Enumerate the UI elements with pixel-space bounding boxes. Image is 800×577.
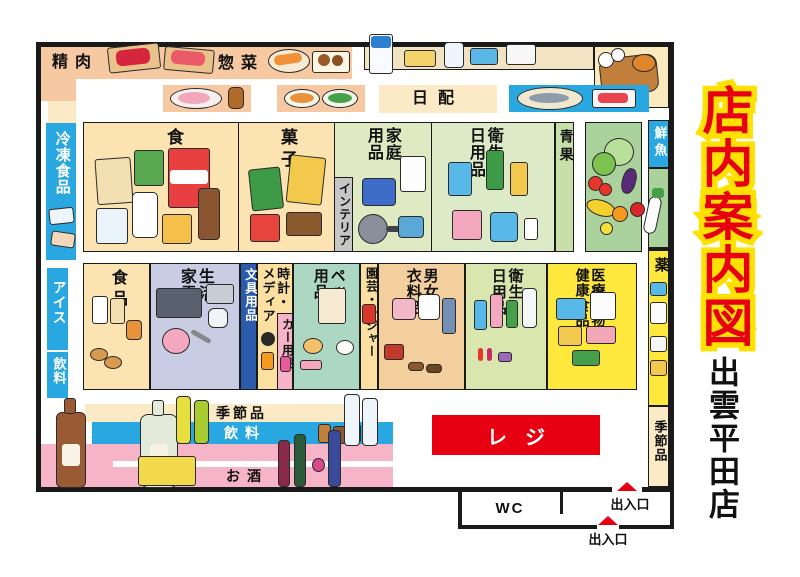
alcohol-bottles — [278, 440, 290, 487]
alcohol-bottles — [64, 398, 76, 414]
meat-boards — [170, 50, 205, 67]
left-cream-square — [48, 101, 76, 123]
pet-items — [336, 340, 354, 355]
register-label: レジ — [487, 421, 563, 450]
beverage-bottles — [176, 396, 191, 444]
salad-plates — [328, 93, 352, 103]
section-daily-delivery: 日配 — [412, 90, 464, 108]
grilled-fish-sashimi — [598, 93, 628, 103]
clothing-items — [392, 298, 416, 320]
meat-band-left-leg — [41, 79, 76, 101]
beverage-bottles — [344, 394, 360, 446]
section-interior: インテリア — [337, 182, 350, 247]
beverage-bottles — [362, 398, 378, 446]
section-seasonal-side: 季節品 — [652, 420, 667, 462]
section-alcohol-shelf: お酒 — [226, 469, 268, 485]
fried-fish-display — [611, 48, 625, 62]
section-seasonal-shelf: 季節品 — [216, 406, 267, 422]
vegetables — [600, 222, 613, 235]
media-items — [261, 332, 275, 346]
bread-milk — [92, 296, 108, 324]
dairy-products — [444, 42, 464, 68]
seasonal-shelf-band — [85, 404, 345, 422]
vegetables — [612, 206, 628, 222]
snack-items — [286, 212, 322, 236]
alcohol-bottles — [328, 430, 341, 487]
drug-packs — [650, 336, 667, 352]
clothing-items — [426, 364, 442, 373]
grocery-items — [94, 157, 133, 205]
section-stationery: 文具用品 — [243, 268, 257, 322]
garden-item — [362, 304, 376, 324]
alcohol-bottles — [294, 434, 306, 487]
alcohol-bottles — [152, 400, 164, 416]
clothing-items — [408, 362, 424, 371]
grilled-fish-sashimi — [529, 93, 569, 103]
alcohol-bottles — [62, 444, 80, 466]
cosmetic-items — [487, 348, 492, 361]
dairy-products — [371, 36, 391, 48]
ham-plate — [178, 92, 210, 104]
vegetables — [599, 183, 612, 196]
daikon — [652, 188, 664, 198]
grocery-items — [162, 214, 192, 244]
section-ice: アイス — [51, 280, 67, 325]
toiletry-items — [448, 162, 472, 196]
section-beverage-shelf: 飲料 — [224, 426, 266, 442]
entrance-bottom-label: 出入口 — [584, 533, 632, 548]
section-medicine: 薬 — [652, 257, 669, 273]
section-produce: 青果 — [558, 129, 574, 165]
grocery-items — [170, 170, 208, 184]
household-items — [400, 156, 426, 192]
appliance-items — [206, 284, 234, 304]
clothing-items — [384, 344, 404, 360]
medicine-strip — [648, 250, 669, 406]
drug-packs — [650, 302, 667, 324]
health-boxes — [590, 292, 616, 320]
vegetables — [630, 202, 645, 217]
fried-fish-display — [632, 54, 656, 72]
store-name: 出雲平田店 — [706, 356, 737, 521]
cosmetic-items — [506, 300, 518, 328]
drug-packs — [650, 360, 667, 376]
section-frozen: 冷凍食品 — [53, 131, 70, 195]
dairy-products — [404, 50, 436, 67]
wc-label: WC — [480, 501, 540, 518]
cosmetic-items — [478, 348, 483, 361]
store-map: 精肉 惣菜 日配 冷凍食品 アイス 飲料 食品 菓子 家庭 用品 — [0, 0, 800, 577]
deli-fried-foods — [318, 54, 330, 66]
household-items — [362, 178, 396, 206]
page-title: 店内案内図 店内案内図 — [692, 84, 770, 364]
salad-plates — [290, 93, 314, 103]
cosmetic-items — [474, 300, 487, 330]
section-household: 家庭 用品 — [364, 127, 400, 161]
bread-milk — [110, 298, 125, 324]
snack-items — [286, 154, 327, 206]
cosmetic-items — [498, 352, 512, 362]
cosmetic-items — [490, 294, 503, 328]
media-items — [261, 352, 274, 370]
toiletry-items — [510, 162, 528, 196]
health-boxes — [556, 298, 586, 320]
clothing-items — [418, 294, 440, 320]
deli-fried-foods — [332, 55, 343, 66]
register-counter: レジ — [432, 415, 600, 455]
household-items — [358, 214, 388, 244]
appliance-items — [208, 308, 228, 328]
beverage-bottles — [194, 400, 209, 444]
toiletry-items — [524, 218, 538, 240]
section-deli: 惣菜 — [218, 55, 264, 73]
ham-plate — [228, 87, 244, 109]
snack-items — [250, 214, 280, 242]
household-items — [398, 216, 424, 238]
pet-items — [318, 288, 346, 324]
grocery-items — [134, 150, 164, 186]
clothing-items — [442, 298, 456, 334]
frozen-items — [50, 230, 76, 248]
dairy-products — [506, 44, 536, 65]
grocery-items — [132, 192, 158, 238]
bread-milk — [126, 320, 142, 340]
appliance-items — [162, 328, 190, 354]
cosmetic-items — [522, 288, 537, 328]
vegetables — [592, 152, 616, 176]
snack-items — [248, 166, 284, 211]
entrance-right-label: 出入口 — [606, 498, 654, 513]
drug-packs — [650, 282, 667, 296]
entrance-triangle-bottom — [598, 516, 618, 525]
toiletry-items — [486, 150, 504, 190]
media-items — [280, 356, 291, 372]
section-beverage-side: 飲料 — [51, 357, 66, 385]
alcohol-bottles — [138, 456, 196, 486]
toiletry-items — [452, 210, 482, 240]
appliance-items — [156, 288, 202, 318]
pet-items — [303, 338, 323, 354]
annex-divider — [560, 492, 563, 514]
health-boxes — [558, 326, 582, 346]
grocery-items — [198, 188, 220, 240]
page-title-text: 店内案内図 — [698, 84, 749, 349]
health-boxes — [586, 326, 616, 344]
pet-items — [300, 360, 322, 370]
health-boxes — [572, 350, 600, 366]
toiletry-items — [490, 212, 518, 242]
section-meat: 精肉 — [52, 54, 98, 72]
section-fresh-fish: 鮮魚 — [652, 126, 667, 160]
dairy-products — [470, 48, 498, 65]
entrance-triangle-right — [617, 482, 637, 491]
bread-milk — [104, 356, 122, 369]
grocery-items — [96, 208, 128, 244]
frozen-items — [48, 207, 75, 226]
alcohol-bottles — [312, 458, 325, 472]
